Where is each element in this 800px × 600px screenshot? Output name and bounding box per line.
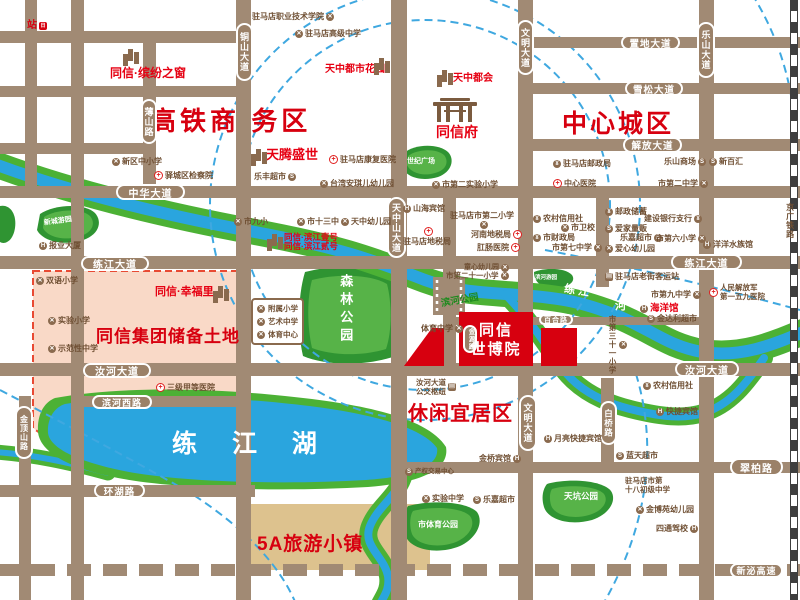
icon-tongxinfu-gate xyxy=(432,98,478,124)
label-text: 天中都会 xyxy=(453,73,493,84)
label-text: 练江大道 xyxy=(685,255,729,270)
poi-city-tax-bureau: 驻马店地税局 xyxy=(403,237,451,247)
school-icon: ✕ xyxy=(36,277,44,285)
label-text: 中心城区 xyxy=(562,110,674,138)
bank-icon: ¥ xyxy=(533,234,541,242)
label-text: 市九小 xyxy=(244,217,268,227)
school-icon: ✕ xyxy=(257,305,265,313)
label-text: 练 江 湖 xyxy=(172,430,331,458)
hotel-icon: H xyxy=(39,242,47,250)
school-icon: ✕ xyxy=(297,218,305,226)
poi-no2-experimental-primary: ✕市第二实验小学 xyxy=(432,180,498,190)
proj-tianzhong-duhui: 天中都会 xyxy=(453,73,493,85)
park-city-sports-park: 市体育公园 xyxy=(418,521,458,530)
road-jindingshan-road: 金顶山路 xyxy=(15,406,33,459)
label-text: 体育中学 xyxy=(421,324,453,334)
label-text: 山海宾馆 xyxy=(413,204,445,214)
building-icon xyxy=(218,286,223,298)
poi-no2-primary: 驻马店市第二小学 xyxy=(450,211,514,221)
label-text: 驻马店高级中学 xyxy=(305,29,361,39)
road-baihe-road: 百合路 xyxy=(539,314,573,325)
label-text: 邮政储蓄 xyxy=(615,207,647,217)
label-text: 河 xyxy=(615,300,626,312)
icon-tianzhong-duhui xyxy=(436,70,454,82)
label-text: 驻马店邮政局 xyxy=(563,159,611,169)
poi-no7-middle: 市第七中学✕ xyxy=(552,243,602,253)
label-text: 5A旅游小镇 xyxy=(257,534,363,555)
label-text: 农村信用社 xyxy=(653,381,693,391)
school-icon: ✕ xyxy=(561,224,569,232)
label-text: 练 江 xyxy=(563,283,590,299)
label-text: 洋洋水族馆 xyxy=(713,240,753,250)
school-icon: ✕ xyxy=(341,218,349,226)
school-icon: ✕ xyxy=(693,291,701,299)
poi-no13-middle: ✕市十三中 xyxy=(297,217,339,227)
schools-box: ✕附属小学✕艺术中学✕体育中心 xyxy=(251,298,304,345)
bank-icon: ¥ xyxy=(553,160,561,168)
red-icon: + xyxy=(709,288,718,297)
bus-icon: ▤ xyxy=(605,273,613,281)
building-icon xyxy=(379,58,384,70)
road-cuibai-road: 翠柏路 xyxy=(730,458,783,476)
park-xincheng-garden: 新城游园 xyxy=(44,216,73,228)
label-text: 白桥路 xyxy=(603,409,615,438)
park-binhe-park: 滨河公园 xyxy=(440,293,479,310)
shop-icon: S xyxy=(473,496,481,504)
poi-hsr-station: 站日 xyxy=(27,20,47,32)
label-text: 人民解放军第一五九医院 xyxy=(720,283,765,301)
zone-leisure-area: 休闲宜居区 xyxy=(408,397,513,426)
proj-tianteng-shengshi: 天腾盛世 xyxy=(266,148,318,163)
label-text: 环湖路 xyxy=(104,484,136,498)
label-text: 滨河西路 xyxy=(102,396,142,409)
label-text: 滨河公园 xyxy=(440,292,479,309)
poi-express-hotel: H快捷宾馆 xyxy=(656,407,698,417)
park-forest-park: 森林公园 xyxy=(338,274,352,346)
label-text: 京广铁路 xyxy=(785,203,795,239)
poi-model-middle: ✕示范性中学 xyxy=(48,344,98,354)
labels-layer: 高铁商 务区中心城区同信集团储备土地休闲宜居区5A旅游小镇练 江 湖铜山大道薄山… xyxy=(0,0,800,600)
label-text: 新泌高速 xyxy=(736,564,776,577)
bus-icon: ▤ xyxy=(448,383,456,391)
poi-yangyang-aquarium: H洋洋水族馆 xyxy=(703,240,753,250)
label-text: 同信府 xyxy=(436,124,478,140)
label-text: 汝河大道公交枢纽 xyxy=(416,378,446,396)
label-text: 产权交易中心 xyxy=(415,468,454,476)
shop-icon: S xyxy=(698,158,706,166)
school-icon: ✕ xyxy=(48,345,56,353)
label-text: 站 xyxy=(27,20,37,32)
label-text: 天腾盛世 xyxy=(266,147,318,162)
label-text: 中心医院 xyxy=(564,179,596,189)
school-icon: ✕ xyxy=(636,506,644,514)
label-text: 市第九中学 xyxy=(651,290,691,300)
poi-jinqiao-hotel: 金桥宾馆H xyxy=(479,454,521,464)
poi-pla-159-hospital: +人民解放军第一五九医院 xyxy=(709,283,765,301)
building-icon xyxy=(128,49,133,61)
zone-hsr-business: 高铁商 务区 xyxy=(150,101,311,138)
school-icon: ✕ xyxy=(295,30,303,38)
school-icon: ✕ xyxy=(619,341,627,349)
school-icon: ✕ xyxy=(432,181,440,189)
building-icon xyxy=(256,149,261,161)
school-icon: ✕ xyxy=(257,331,265,339)
poi-no18-junior: 驻马店市第十八初级中学 xyxy=(625,476,670,494)
label-text: 乐山大道 xyxy=(700,30,713,70)
label-text: 海洋馆 xyxy=(650,303,679,314)
zone-5a-town: 5A旅游小镇 xyxy=(257,529,363,556)
red-icon: + xyxy=(329,155,338,164)
bank-icon: ¥ xyxy=(533,215,541,223)
proj-binfenzhichuang: 同信·缤纷之窗 xyxy=(110,67,186,81)
icon-tianteng xyxy=(250,149,268,161)
building-icon xyxy=(272,234,277,246)
icon-tianzhong-garden xyxy=(373,58,391,70)
poi-senior-high: ✕驻马店高级中学 xyxy=(295,29,361,39)
river-he: 河 xyxy=(615,300,626,312)
poi-finance-bureau: ¥市财政局 xyxy=(533,233,575,243)
hotel-icon: H xyxy=(403,205,411,213)
red-icon: + xyxy=(553,179,562,188)
poi-vocational-college: 驻马店职业技术学院✕ xyxy=(252,12,334,22)
road-boshan-road: 薄山路 xyxy=(141,99,157,144)
poi-no21-primary: 市第二十一小学✕ xyxy=(446,271,509,280)
label-text: 休闲宜居区 xyxy=(408,403,513,425)
label-text: 示范性中学 xyxy=(58,344,98,354)
label-text: 置地大道 xyxy=(629,36,671,50)
label-text: 新区中小学 xyxy=(122,157,162,167)
road-wenming-avenue-s: 文明大道 xyxy=(519,395,537,451)
label-text: 乐山商场 xyxy=(664,157,696,167)
poi-no31-primary: ✕市第三十一小学 xyxy=(608,315,627,375)
poi-3a-hospital: +三级甲等医院 xyxy=(156,383,215,393)
label-text: 文明大道 xyxy=(519,28,532,68)
label-text: 市财政局 xyxy=(543,233,575,243)
label-text: 快捷宾馆 xyxy=(666,407,698,417)
shop-icon: S xyxy=(709,158,717,166)
label-text: 爱心幼儿园 xyxy=(615,244,655,254)
poi-shanhai-hotel: H山海宾馆 xyxy=(403,204,445,214)
poi-sitong-driving-school: 四通驾校H xyxy=(656,524,698,534)
poi-experimental-middle: ✕实验中学 xyxy=(422,494,464,504)
road-jiefang-avenue: 解放大道 xyxy=(623,137,682,153)
gate-icon xyxy=(432,98,478,124)
label-text: 百合路 xyxy=(544,315,568,325)
hotel-icon: H xyxy=(656,408,664,416)
road-zhonghua-avenue: 中华大道 xyxy=(116,184,185,200)
poi-post-office: ¥驻马店邮政局 xyxy=(553,159,611,169)
road-zhidi-avenue: 置地大道 xyxy=(621,35,680,50)
poi-health-school: ✕市卫校 xyxy=(561,223,595,233)
road-ruhe-avenue-e: 汝河大道 xyxy=(675,361,739,377)
school-icon: ✕ xyxy=(422,495,430,503)
school-icon: ✕ xyxy=(501,272,509,280)
bank-icon: ¥ xyxy=(605,208,613,216)
poi-lantian-market: S蓝天超市 xyxy=(616,451,658,461)
school-icon: ✕ xyxy=(320,180,328,188)
poi-jingguang-railway: 京广铁路 xyxy=(785,203,795,239)
label-text: 肛肠医院 xyxy=(477,243,509,253)
poi-ocean-hall: H海洋馆 xyxy=(640,303,679,314)
label-text: 市第七中学 xyxy=(552,243,592,253)
label-text: 高铁商 务区 xyxy=(150,106,311,136)
label-text: 乐嘉超市 xyxy=(483,495,515,505)
schools-box-item: ✕附属小学 xyxy=(257,303,298,314)
label-text: 实验中学 xyxy=(432,494,464,504)
road-binhe-west-road: 滨河西路 xyxy=(92,395,152,409)
label-text: 四通驾校 xyxy=(656,524,688,534)
poi-leshan-mall: 乐山商场S xyxy=(664,157,706,167)
red-icon: + xyxy=(511,243,520,252)
poi-rural-credit-s: ¥农村信用社 xyxy=(643,381,693,391)
label-text: 市第二十一小学 xyxy=(446,271,499,280)
poi-no9-primary: ✕市九小 xyxy=(234,217,268,227)
school-icon: ✕ xyxy=(257,318,265,326)
road-wenming-avenue-n: 文明大道 xyxy=(517,20,534,75)
bank-icon: ¥ xyxy=(694,215,702,223)
poi-jindali-market: S金达利超市 xyxy=(647,314,697,324)
label-text: 月亮快捷宾馆 xyxy=(554,434,602,444)
road-lianjiang-avenue-w: 练江大道 xyxy=(81,256,149,271)
label-text: 金桥宾馆 xyxy=(479,454,511,464)
poi-city-tax-icon: + xyxy=(424,227,433,236)
poi-moon-hotel: H月亮快捷宾馆 xyxy=(544,434,602,444)
road-huanhu-road: 环湖路 xyxy=(94,483,145,498)
label-text: 乐丰超市 xyxy=(254,172,286,182)
label-text: 铜山大道 xyxy=(238,32,251,72)
road-tongshan-avenue: 铜山大道 xyxy=(236,23,253,81)
label-text: 体育中心 xyxy=(268,329,298,340)
label-text: 森林公园 xyxy=(338,274,353,346)
label-text: 实验小学 xyxy=(58,316,90,326)
label-text: 报业大厦 xyxy=(49,241,81,251)
road-ruhe-avenue-w: 汝河大道 xyxy=(83,363,151,378)
poi-henan-tax: 河南地税局+ xyxy=(471,230,522,240)
road-leshan-avenue: 乐山大道 xyxy=(697,22,715,78)
label-text: 同信世博院 xyxy=(470,322,521,358)
label-text: 市第六小学 xyxy=(656,234,696,244)
poi-xinbaihui: S新百汇 xyxy=(709,157,743,167)
zone-reserve-land: 同信集团储备土地 xyxy=(96,322,240,347)
road-xuesong-avenue: 雪松大道 xyxy=(625,81,683,96)
label-text: 蓝天超市 xyxy=(626,451,658,461)
label-text: 天中山大道 xyxy=(390,203,403,253)
hotel-icon: H xyxy=(513,455,521,463)
label-text: 薄山路 xyxy=(143,107,156,137)
label-text: 中华大道 xyxy=(129,185,173,200)
label-text: 汝河大道 xyxy=(685,362,729,377)
label-text: 市体育公园 xyxy=(418,520,458,529)
red-icon: + xyxy=(154,171,163,180)
poi-aixin-kindergarten: ✕爱心幼儿园 xyxy=(605,244,655,254)
label-text: 三级甲等医院 xyxy=(167,383,215,393)
red-icon: + xyxy=(513,230,522,239)
poi-no9-middle: 市第九中学✕ xyxy=(651,290,701,300)
label-text: 金博苑幼儿园 xyxy=(646,505,694,515)
label-text: 练江大道 xyxy=(93,256,137,271)
hotel-icon: H xyxy=(690,525,698,533)
label-text: 新百汇 xyxy=(719,157,743,167)
road-xinmi-expressway: 新泌高速 xyxy=(730,563,783,578)
shop-icon: S xyxy=(288,173,296,181)
label-text: 雪松大道 xyxy=(633,82,675,96)
label-text: 汝河大道 xyxy=(95,363,139,378)
label-text: 建设银行支行 xyxy=(644,214,692,224)
label-text: 金顶山路 xyxy=(19,415,30,451)
map-canvas: 高铁商 务区中心城区同信集团储备土地休闲宜居区5A旅游小镇练 江 湖铜山大道薄山… xyxy=(0,0,800,600)
icon-xingfuli xyxy=(212,286,230,298)
label-text: 驻马店康复医院 xyxy=(340,155,396,165)
poi-taiwan-kindergarten: ✕台湾安琪儿幼儿园 xyxy=(320,179,394,189)
poi-laojie-bus-station: ▤驻马店老街客运站 xyxy=(605,272,679,282)
poi-no2-middle-school: 市第二中学✕ xyxy=(658,179,708,189)
school-icon: ✕ xyxy=(594,244,602,252)
poi-gangchang-hospital: 肛肠医院+ xyxy=(477,243,520,253)
shop-icon: S xyxy=(616,452,624,460)
icon-binjiang xyxy=(266,234,284,246)
label-text: 附属小学 xyxy=(268,303,298,314)
zone-central-city: 中心城区 xyxy=(562,104,674,140)
label-text: 同信·缤纷之窗 xyxy=(110,66,186,80)
label-text: 驻马店市第十八初级中学 xyxy=(625,476,670,494)
icon-binfenzhichuang xyxy=(122,49,140,61)
river-lianjiang: 练 江 xyxy=(563,283,590,299)
red-icon: + xyxy=(424,227,433,236)
label-text: 驻马店地税局 xyxy=(403,237,451,247)
label-shiboyuan: 同信世博院 xyxy=(458,322,534,360)
poi-postal-savings: ¥邮政储蓄 xyxy=(605,207,647,217)
label-text: 天坑公园 xyxy=(564,491,598,501)
label-text: 双语小学 xyxy=(46,276,78,286)
label-text: 解放大道 xyxy=(631,138,673,152)
park-century-square: 世纪广场 xyxy=(407,158,435,166)
label-text: 乐嘉超市 xyxy=(620,233,652,243)
label-text: 市第三十一小学 xyxy=(608,315,617,375)
poi-experimental-primary: ✕实验小学 xyxy=(48,316,90,326)
label-text: 天中幼儿园 xyxy=(351,217,391,227)
label-text: 艺术中学 xyxy=(268,316,298,327)
hotel-icon: H xyxy=(544,435,552,443)
label-text: 文明大道 xyxy=(522,403,535,443)
label-text: 台湾安琪儿幼儿园 xyxy=(330,179,394,189)
label-text: 翠柏路 xyxy=(740,460,773,475)
poi-jinboyuan-kindergarten: ✕金博苑幼儿园 xyxy=(636,505,694,515)
school-icon: ✕ xyxy=(605,245,613,253)
label-text: 驻马店老街客运站 xyxy=(615,272,679,282)
proj-tongxin-fu: 同信府 xyxy=(436,124,478,140)
school-icon: ✕ xyxy=(326,13,334,21)
label-text: 驿城区检察院 xyxy=(165,171,213,181)
school-icon: ✕ xyxy=(700,180,708,188)
poi-central-hospital: +中心医院 xyxy=(553,179,596,189)
poi-ccb-branch: 建设银行支行¥ xyxy=(644,214,702,224)
train-icon: 日 xyxy=(39,22,47,30)
park-binhe-garden: 滨河游园 xyxy=(535,275,557,281)
hotel-icon: H xyxy=(640,305,648,313)
park-tiankeng-park: 天坑公园 xyxy=(564,492,598,501)
label-text: 驻马店市第二小学 xyxy=(450,211,514,221)
poi-sports-middle: 体育中学✕ xyxy=(421,324,463,334)
hotel-icon: H xyxy=(703,241,711,249)
proj-binjiang-no2: 同信·滨江贰号 xyxy=(284,242,338,252)
label-text: 世纪广场 xyxy=(407,158,435,165)
label-text: 市十三中 xyxy=(307,217,339,227)
poi-no6-primary: 市第六小学✕ xyxy=(656,234,706,244)
poi-lejia-market-s: S乐嘉超市 xyxy=(473,495,515,505)
label-text: 市第二实验小学 xyxy=(442,180,498,190)
poi-bus-hub: 汝河大道公交枢纽▤ xyxy=(416,378,456,396)
shop-icon: S xyxy=(647,315,655,323)
zone-lianjiang-lake: 练 江 湖 xyxy=(172,424,331,460)
poi-press-building: H报业大厦 xyxy=(39,241,81,251)
label-text: 同信·滨江贰号 xyxy=(284,241,338,251)
school-icon: ✕ xyxy=(48,317,56,325)
poi-no2-primary-icon: ✕ xyxy=(480,221,488,229)
shop-icon: S xyxy=(605,225,613,233)
poi-yicheng-procuratorate: +驿城区检察院 xyxy=(154,171,213,181)
schools-box-item: ✕体育中心 xyxy=(257,329,298,340)
label-text: 驻马店职业技术学院 xyxy=(252,12,324,22)
label-text: 市卫校 xyxy=(571,223,595,233)
poi-property-exchange: S产权交易中心 xyxy=(405,468,454,476)
bank-icon: ¥ xyxy=(643,382,651,390)
school-icon: ✕ xyxy=(480,221,488,229)
road-lianjiang-avenue-e: 练江大道 xyxy=(671,254,742,270)
schools-box-item: ✕艺术中学 xyxy=(257,316,298,327)
label-text: 河南地税局 xyxy=(471,230,511,240)
poi-lefeng-market: 乐丰超市S xyxy=(254,172,296,182)
red-icon: + xyxy=(156,383,165,392)
proj-xingfuli: 同信·幸福里 xyxy=(155,286,214,299)
road-baiqiao-road: 白桥路 xyxy=(600,401,617,445)
poi-tianzhong-kindergarten: ✕天中幼儿园 xyxy=(341,217,391,227)
poi-rehab-hospital: +驻马店康复医院 xyxy=(329,155,396,165)
school-icon: ✕ xyxy=(112,158,120,166)
school-icon: ✕ xyxy=(234,218,242,226)
label-text: 新城游园 xyxy=(44,216,73,227)
label-text: 金达利超市 xyxy=(657,314,697,324)
shop-icon: S xyxy=(405,468,413,476)
label-text: 市第二中学 xyxy=(658,179,698,189)
building-icon xyxy=(442,70,447,82)
label-text: 滨河游园 xyxy=(535,275,557,281)
label-text: 同信·幸福里 xyxy=(155,286,214,298)
poi-bilingual-primary: ✕双语小学 xyxy=(36,276,78,286)
poi-xinqu-school: ✕新区中小学 xyxy=(112,157,162,167)
label-text: 同信集团储备土地 xyxy=(96,327,240,346)
